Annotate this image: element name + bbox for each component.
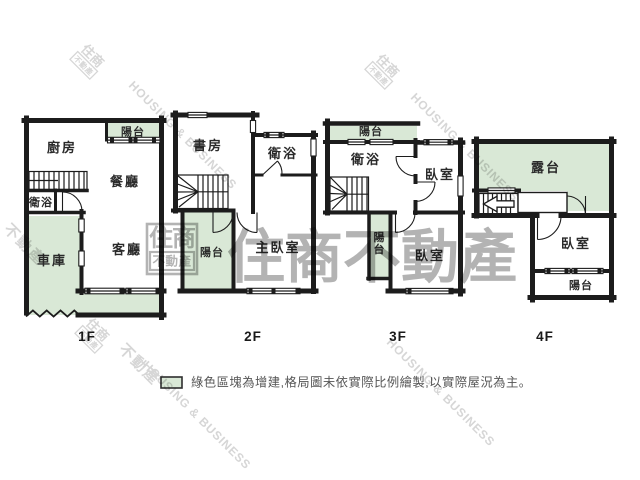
floor-label-2f: 2F	[244, 329, 262, 344]
room-label-bedroom-top-3f: 臥室	[425, 167, 455, 182]
door-arc-bath-2f	[263, 161, 282, 175]
room-label-terrace: 露台	[531, 160, 561, 175]
room-label-balcony-top-3f: 陽台	[359, 124, 383, 138]
room-label-bath-1f: 衛浴	[28, 195, 53, 209]
window-bath-top-2f	[264, 132, 284, 137]
window-balcony-band-3f	[348, 139, 393, 144]
watermark-logo-primary: 住商	[149, 224, 195, 252]
stair-landing	[518, 193, 567, 213]
floorplan-image: 廚房 陽台 餐廳 衛浴 客廳 車庫 1F	[0, 0, 640, 480]
window-study-right	[250, 121, 255, 133]
staircase-3f	[330, 177, 369, 211]
room-label-dining: 餐廳	[109, 174, 140, 189]
room-label-bedroom-4f: 臥室	[561, 236, 591, 251]
watermark-center-logo: 住商 不動產	[147, 224, 197, 274]
door-arc-bedroom-4f	[538, 216, 562, 240]
legend-text: 綠色區塊為增建,格局圖未依實際比例繪製,以實際屋況為主。	[191, 375, 532, 390]
door-arc-hall-1f	[63, 192, 83, 212]
floor-label-4f: 4F	[536, 329, 554, 344]
room-label-bath-2f: 衛浴	[267, 146, 298, 161]
watermark-logo-diag-2: 住商 不動產	[365, 51, 403, 89]
room-label-kitchen: 廚房	[47, 140, 77, 155]
room-label-balcony-4f: 陽台	[569, 278, 593, 292]
addition-area-rear-strip	[80, 294, 160, 315]
room-label-balcony-1f: 陽台	[121, 125, 145, 139]
room-label-bath-3f: 衛浴	[350, 152, 381, 167]
watermark-brand-cn: 住商不動產	[227, 225, 517, 290]
room-label-balcony-2f: 陽台	[200, 245, 224, 259]
room-label-living: 客廳	[112, 242, 142, 257]
legend: 綠色區塊為增建,格局圖未依實際比例繪製,以實際屋況為主。	[161, 375, 532, 390]
window-study-top	[188, 112, 207, 117]
window-right-wall-3f	[458, 176, 463, 196]
door-arc-bedroom-top-3f	[416, 182, 436, 202]
window-right-wall-2f	[311, 139, 316, 156]
watermark-brand-en: HOUSING & BUSINESS	[384, 335, 498, 449]
floor-plan-1f: 廚房 陽台 餐廳 衛浴 客廳 車庫 1F	[24, 118, 164, 344]
door-arc-bath-3f	[396, 157, 416, 177]
window-living-bottom	[85, 288, 160, 294]
watermark-logo-diag-3: 住商 不動產	[75, 315, 113, 353]
staircase-1f	[29, 172, 87, 190]
watermark-logo-secondary: 不動產	[152, 254, 191, 269]
watermark-logo-diag-1: 住商 不動產	[70, 41, 108, 79]
window-bedroom-balcony-4f	[545, 268, 603, 273]
